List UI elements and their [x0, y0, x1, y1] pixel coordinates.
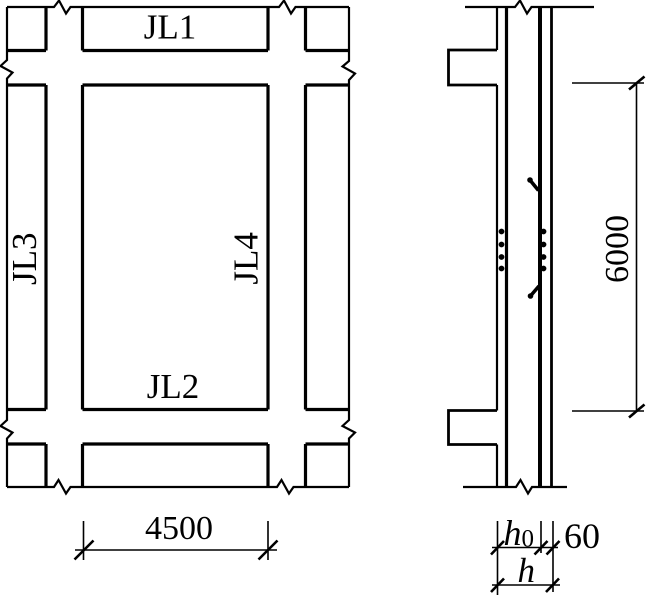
svg-text:0: 0	[522, 526, 535, 553]
svg-text:JL1: JL1	[144, 8, 197, 47]
svg-text:JL4: JL4	[227, 232, 266, 285]
svg-text:JL3: JL3	[5, 233, 44, 286]
svg-text:6000: 6000	[599, 215, 636, 283]
svg-text:4500: 4500	[145, 510, 213, 547]
svg-text:JL2: JL2	[147, 367, 200, 406]
svg-text:h: h	[518, 551, 536, 590]
svg-text:h: h	[504, 513, 522, 553]
svg-text:60: 60	[564, 516, 600, 556]
